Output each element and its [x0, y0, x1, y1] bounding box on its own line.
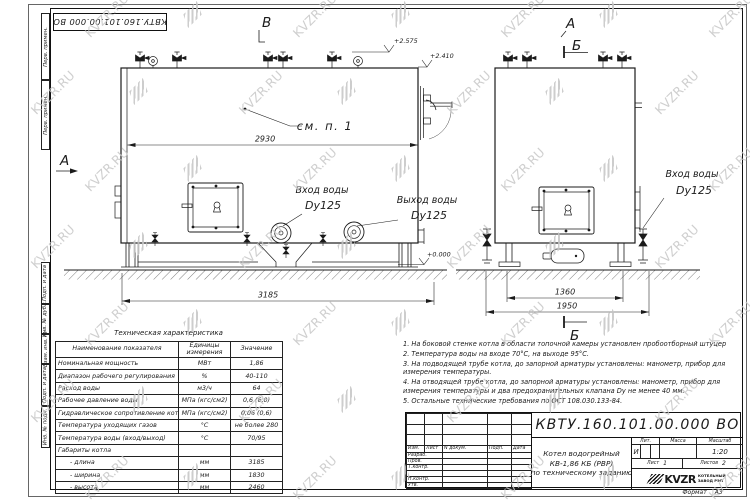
elev-zero: +0.000 — [427, 251, 451, 259]
section-label-b-top: Б — [572, 38, 581, 54]
inlet-size-front: Dy125 — [305, 199, 341, 212]
view-label-a-front: А — [59, 153, 69, 169]
side-view — [482, 52, 648, 267]
drawing-sheet: Перв. примен. Перв. примен. Подп. и дата… — [0, 0, 750, 500]
dim-2930: 2930 — [255, 135, 275, 144]
front-view — [115, 52, 452, 267]
inlet-label-side: Вход воды — [665, 169, 719, 180]
dim-1950: 1950 — [557, 302, 577, 311]
dim-3185: 3185 — [258, 291, 278, 300]
inlet-label-front: Вход воды — [295, 185, 349, 196]
boiler-drawing: 2930 3185 1360 1950 +2.575 +2.410 +0.000… — [0, 0, 750, 500]
elev-step: +2.410 — [430, 52, 454, 60]
ground-hatch — [64, 270, 700, 280]
outlet-size: Dy125 — [411, 209, 447, 222]
see-note-callout: см. п. 1 — [297, 119, 353, 133]
inlet-size-side: Dy125 — [676, 184, 712, 197]
view-label-a-side: А — [565, 16, 575, 32]
section-label-b-bottom: Б — [570, 328, 579, 344]
view-label-v: В — [262, 15, 271, 31]
outlet-label: Выход воды — [397, 195, 458, 206]
elev-top: +2.575 — [394, 37, 418, 45]
dim-1360: 1360 — [555, 288, 575, 297]
